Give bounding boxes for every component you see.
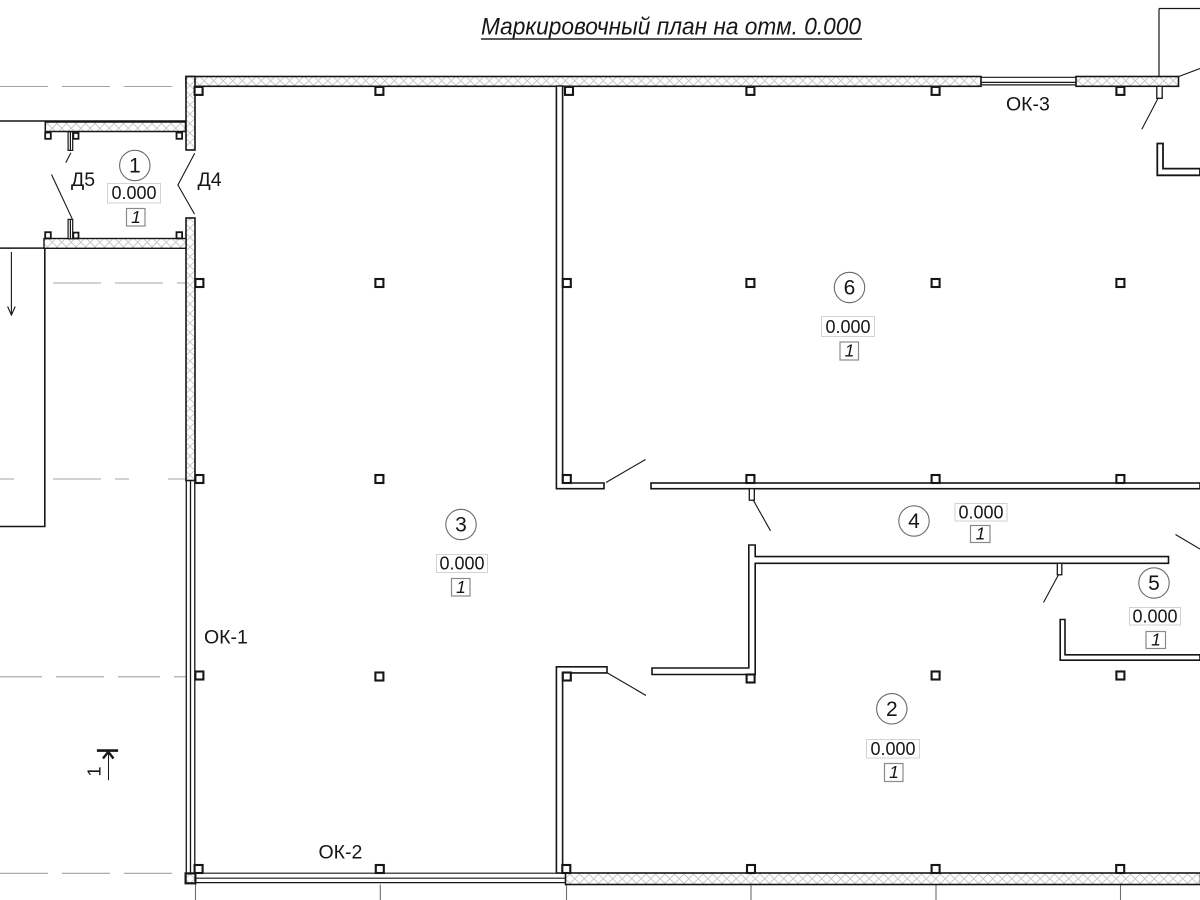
svg-text:4: 4 — [908, 510, 920, 533]
svg-text:Д4: Д4 — [198, 169, 222, 191]
svg-text:Д5: Д5 — [71, 169, 95, 191]
svg-text:1: 1 — [129, 155, 141, 178]
svg-text:0.000: 0.000 — [958, 502, 1003, 522]
svg-text:ОК-3: ОК-3 — [1006, 94, 1050, 116]
svg-text:5: 5 — [1148, 572, 1160, 595]
svg-text:0.000: 0.000 — [111, 183, 156, 203]
svg-text:0.000: 0.000 — [870, 739, 915, 759]
svg-text:1: 1 — [976, 524, 986, 544]
svg-text:0.000: 0.000 — [439, 554, 484, 574]
svg-text:6: 6 — [844, 277, 856, 300]
svg-text:ОК-2: ОК-2 — [319, 842, 363, 864]
svg-text:ОК-1: ОК-1 — [204, 627, 248, 649]
svg-text:1: 1 — [1151, 630, 1161, 650]
svg-text:0.000: 0.000 — [1132, 606, 1177, 626]
svg-text:1: 1 — [845, 341, 855, 361]
svg-text:2: 2 — [886, 698, 898, 721]
svg-text:0.000: 0.000 — [825, 317, 870, 337]
svg-text:3: 3 — [455, 514, 467, 537]
svg-text:1: 1 — [889, 762, 899, 782]
svg-text:Маркировочный план на отм. 0.0: Маркировочный план на отм. 0.000 — [481, 14, 861, 41]
svg-text:1: 1 — [456, 577, 466, 597]
svg-text:1: 1 — [85, 766, 105, 776]
svg-text:1: 1 — [131, 207, 141, 227]
